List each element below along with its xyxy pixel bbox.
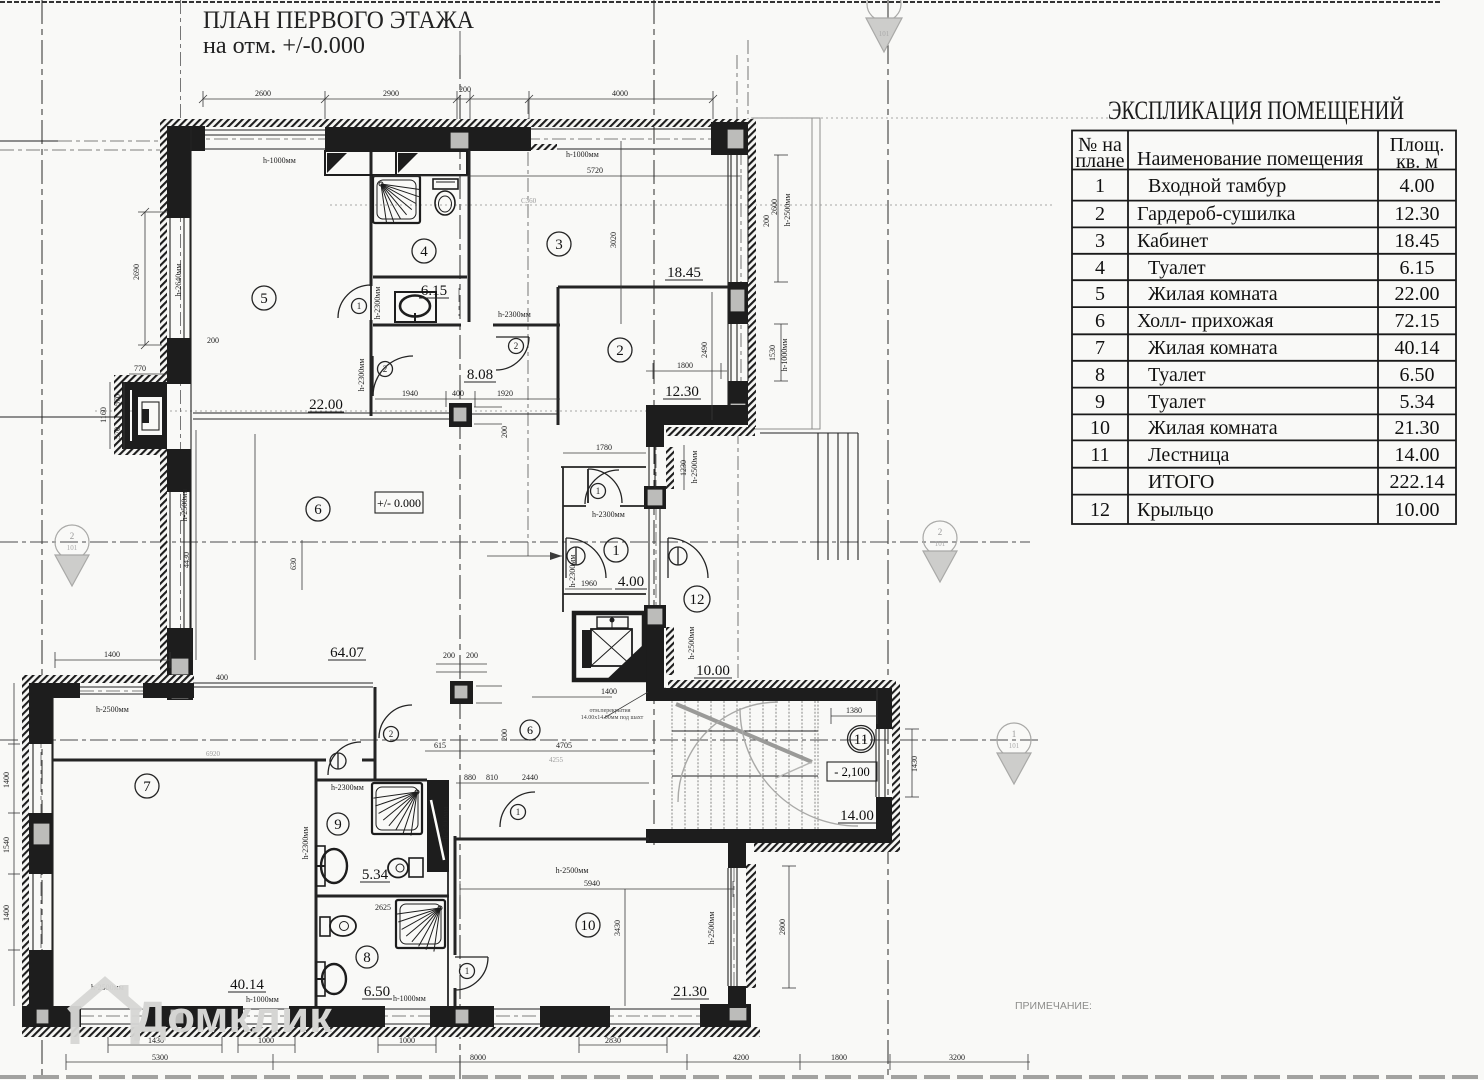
svg-text:h-2300мм: h-2300мм — [592, 510, 625, 519]
svg-text:2600: 2600 — [255, 89, 271, 98]
svg-text:ПРИМЕЧАНИЕ:: ПРИМЕЧАНИЕ: — [1015, 1000, 1092, 1012]
svg-text:570: 570 — [113, 394, 122, 406]
svg-text:5.34: 5.34 — [362, 867, 389, 883]
svg-text:h-2300мм: h-2300мм — [357, 359, 366, 392]
svg-text:10.00: 10.00 — [1395, 499, 1440, 521]
svg-text:2: 2 — [383, 364, 388, 374]
svg-text:12: 12 — [1090, 499, 1110, 521]
svg-text:1430: 1430 — [910, 756, 919, 772]
svg-text:4: 4 — [1095, 257, 1105, 279]
svg-text:ПЛАН ПЕРВОГО ЭТАЖА: ПЛАН ПЕРВОГО ЭТАЖА — [203, 7, 474, 34]
svg-text:на отм. +/-0.000: на отм. +/-0.000 — [203, 33, 365, 59]
svg-text:101: 101 — [1009, 742, 1020, 750]
svg-text:4430: 4430 — [182, 552, 191, 568]
svg-text:400: 400 — [452, 389, 464, 398]
svg-text:1160: 1160 — [99, 407, 108, 423]
svg-text:64.07: 64.07 — [330, 645, 364, 661]
svg-text:770: 770 — [134, 364, 146, 373]
svg-text:6.50: 6.50 — [364, 984, 390, 1000]
svg-text:2800: 2800 — [778, 919, 787, 935]
svg-text:h-2500мм: h-2500мм — [783, 194, 792, 227]
svg-text:200: 200 — [443, 651, 455, 660]
svg-text:- 2,100: - 2,100 — [834, 765, 869, 779]
svg-text:h-1000мм: h-1000мм — [566, 150, 599, 159]
svg-text:Гардероб-сушилка: Гардероб-сушилка — [1137, 203, 1296, 225]
svg-text:h-2500мм: h-2500мм — [690, 451, 699, 484]
svg-text:Туалет: Туалет — [1148, 364, 1206, 386]
svg-text:h-2300мм: h-2300мм — [441, 807, 450, 840]
svg-text:9: 9 — [334, 817, 342, 833]
svg-text:2: 2 — [389, 729, 394, 739]
svg-text:8.08: 8.08 — [467, 367, 493, 383]
svg-text:Лестница: Лестница — [1148, 444, 1230, 466]
svg-text:h-2300мм: h-2300мм — [498, 310, 531, 319]
svg-text:200: 200 — [762, 215, 771, 227]
svg-text:11: 11 — [854, 732, 868, 748]
svg-text:3: 3 — [1095, 230, 1105, 252]
svg-text:6.15: 6.15 — [1400, 257, 1435, 279]
svg-text:40.14: 40.14 — [230, 977, 264, 993]
svg-text:h-2300мм: h-2300мм — [373, 287, 382, 320]
svg-text:плане: плане — [1075, 150, 1124, 172]
svg-text:10.00: 10.00 — [696, 663, 730, 679]
svg-text:10: 10 — [581, 918, 596, 934]
svg-text:h-1000мм: h-1000мм — [263, 156, 296, 165]
svg-text:12.30: 12.30 — [1395, 203, 1440, 225]
svg-text:810: 810 — [486, 773, 498, 782]
svg-text:2440: 2440 — [522, 773, 538, 782]
svg-text:4000: 4000 — [612, 89, 628, 98]
svg-text:Туалет: Туалет — [1148, 257, 1206, 279]
svg-text:18.45: 18.45 — [667, 265, 701, 281]
svg-text:7: 7 — [1095, 337, 1105, 359]
svg-text:2600: 2600 — [770, 199, 779, 215]
svg-text:4.00: 4.00 — [1400, 175, 1435, 197]
svg-text:8: 8 — [363, 950, 371, 966]
svg-text:3200: 3200 — [949, 1053, 965, 1062]
svg-text:11: 11 — [1090, 444, 1109, 466]
svg-text:4255: 4255 — [549, 756, 564, 764]
svg-text:ИТОГО: ИТОГО — [1148, 471, 1214, 493]
svg-text:1800: 1800 — [677, 361, 693, 370]
svg-text:5720: 5720 — [587, 166, 603, 175]
svg-text:222.14: 222.14 — [1390, 471, 1445, 493]
svg-text:14.00: 14.00 — [840, 808, 874, 824]
svg-text:Кабинет: Кабинет — [1137, 230, 1208, 252]
svg-text:10: 10 — [1090, 417, 1110, 439]
svg-text:4200: 4200 — [733, 1053, 749, 1062]
svg-text:9: 9 — [1095, 391, 1105, 413]
svg-text:Входной тамбур: Входной тамбур — [1148, 175, 1286, 197]
svg-text:отм.перекрытия: отм.перекрытия — [590, 708, 631, 714]
svg-text:3430: 3430 — [613, 920, 622, 936]
svg-text:C360: C360 — [521, 197, 537, 205]
svg-text:8: 8 — [1095, 364, 1105, 386]
svg-text:4: 4 — [420, 244, 428, 260]
svg-text:1400: 1400 — [2, 905, 11, 921]
svg-text:4.00: 4.00 — [618, 574, 644, 590]
svg-text:3020: 3020 — [609, 232, 618, 248]
svg-text:14.00: 14.00 — [1395, 444, 1440, 466]
svg-text:72.15: 72.15 — [1395, 310, 1440, 332]
svg-text:400: 400 — [216, 673, 228, 682]
svg-text:1000: 1000 — [399, 1036, 415, 1045]
svg-text:7: 7 — [143, 779, 151, 795]
svg-text:40.14: 40.14 — [1395, 337, 1440, 359]
svg-text:h-2500мм: h-2500мм — [180, 489, 189, 522]
svg-text:Жилая комната: Жилая комната — [1148, 337, 1278, 359]
svg-text:Холл- прихожая: Холл- прихожая — [1137, 310, 1274, 332]
svg-text:2: 2 — [70, 531, 75, 541]
svg-text:Жилая комната: Жилая комната — [1148, 417, 1278, 439]
svg-text:1800: 1800 — [831, 1053, 847, 1062]
svg-text:h-2300мм: h-2300мм — [301, 827, 310, 860]
svg-text:6920: 6920 — [206, 750, 221, 758]
svg-text:+/- 0.000: +/- 0.000 — [377, 496, 421, 510]
svg-text:5: 5 — [260, 291, 268, 307]
svg-text:200: 200 — [207, 336, 219, 345]
svg-text:1: 1 — [1095, 175, 1105, 197]
svg-text:2830: 2830 — [605, 1036, 621, 1045]
svg-text:5300: 5300 — [152, 1053, 168, 1062]
svg-text:1530: 1530 — [768, 345, 777, 361]
svg-text:h-2500мм: h-2500мм — [96, 705, 129, 714]
svg-text:Жилая комната: Жилая комната — [1148, 283, 1278, 305]
svg-text:6.50: 6.50 — [1400, 364, 1435, 386]
svg-text:h-2500мм: h-2500мм — [687, 627, 696, 660]
svg-text:200: 200 — [500, 729, 509, 741]
svg-text:Туалет: Туалет — [1148, 391, 1206, 413]
svg-text:5940: 5940 — [584, 879, 600, 888]
svg-text:2: 2 — [1095, 203, 1105, 225]
svg-text:1400: 1400 — [601, 687, 617, 696]
svg-text:1: 1 — [357, 301, 362, 311]
svg-text:h-2300мм: h-2300мм — [568, 555, 577, 588]
svg-text:1540: 1540 — [2, 837, 11, 853]
svg-text:22.00: 22.00 — [1395, 283, 1440, 305]
svg-text:2625: 2625 — [375, 903, 391, 912]
svg-text:5.34: 5.34 — [1400, 391, 1435, 413]
svg-text:18.45: 18.45 — [1395, 230, 1440, 252]
svg-text:200: 200 — [466, 651, 478, 660]
svg-text:12: 12 — [690, 592, 705, 608]
svg-text:Крыльцо: Крыльцо — [1137, 499, 1214, 521]
svg-text:1960: 1960 — [581, 579, 597, 588]
svg-text:1: 1 — [465, 966, 470, 976]
svg-text:1400: 1400 — [2, 772, 11, 788]
svg-text:6.15: 6.15 — [421, 283, 447, 299]
svg-text:2900: 2900 — [383, 89, 399, 98]
svg-text:1: 1 — [612, 543, 620, 559]
svg-text:8000: 8000 — [470, 1053, 486, 1062]
svg-text:1940: 1940 — [402, 389, 418, 398]
svg-text:1780: 1780 — [596, 443, 612, 452]
svg-text:h-1000мм: h-1000мм — [393, 994, 426, 1003]
svg-text:h-2640мм: h-2640мм — [174, 264, 183, 297]
svg-text:1: 1 — [596, 486, 601, 496]
svg-text:6: 6 — [1095, 310, 1105, 332]
svg-text:615: 615 — [434, 741, 446, 750]
svg-text:h-2500мм: h-2500мм — [707, 912, 716, 945]
svg-text:1: 1 — [1012, 729, 1017, 739]
svg-text:h-2500мм: h-2500мм — [556, 866, 589, 875]
svg-text:3: 3 — [555, 237, 563, 253]
svg-text:101: 101 — [879, 30, 890, 38]
svg-text:22.00: 22.00 — [309, 397, 343, 413]
svg-text:12.30: 12.30 — [665, 384, 699, 400]
svg-text:200: 200 — [459, 85, 471, 94]
svg-text:101: 101 — [935, 540, 946, 548]
svg-text:1230: 1230 — [679, 460, 688, 476]
svg-text:880: 880 — [464, 773, 476, 782]
svg-text:2: 2 — [514, 341, 519, 351]
svg-text:h-1000мм: h-1000мм — [780, 339, 789, 372]
svg-text:ЭКСПЛИКАЦИЯ ПОМЕЩЕНИЙ: ЭКСПЛИКАЦИЯ ПОМЕЩЕНИЙ — [1108, 96, 1404, 125]
svg-text:кв. м: кв. м — [1396, 151, 1438, 173]
svg-text:1920: 1920 — [497, 389, 513, 398]
svg-text:2690: 2690 — [132, 264, 141, 280]
svg-text:14.00х14.00мм под шахт: 14.00х14.00мм под шахт — [581, 715, 644, 721]
svg-text:2: 2 — [616, 343, 624, 359]
svg-text:1: 1 — [516, 807, 521, 817]
svg-text:2490: 2490 — [700, 342, 709, 358]
svg-text:1380: 1380 — [846, 706, 862, 715]
svg-text:200: 200 — [500, 426, 509, 438]
svg-text:1400: 1400 — [104, 650, 120, 659]
svg-text:6: 6 — [314, 502, 322, 518]
svg-text:5: 5 — [1095, 283, 1105, 305]
svg-text:21.30: 21.30 — [1395, 417, 1440, 439]
svg-text:21.30: 21.30 — [673, 984, 707, 1000]
svg-text:101: 101 — [67, 544, 78, 552]
svg-text:630: 630 — [289, 558, 298, 570]
svg-text:2: 2 — [938, 527, 943, 537]
svg-text:Наименование помещения: Наименование помещения — [1137, 148, 1363, 170]
svg-text:Домклик: Домклик — [134, 993, 333, 1042]
svg-text:570: 570 — [113, 427, 122, 439]
svg-text:h-2300мм: h-2300мм — [331, 783, 364, 792]
svg-text:6: 6 — [527, 723, 533, 737]
svg-text:4705: 4705 — [556, 741, 572, 750]
